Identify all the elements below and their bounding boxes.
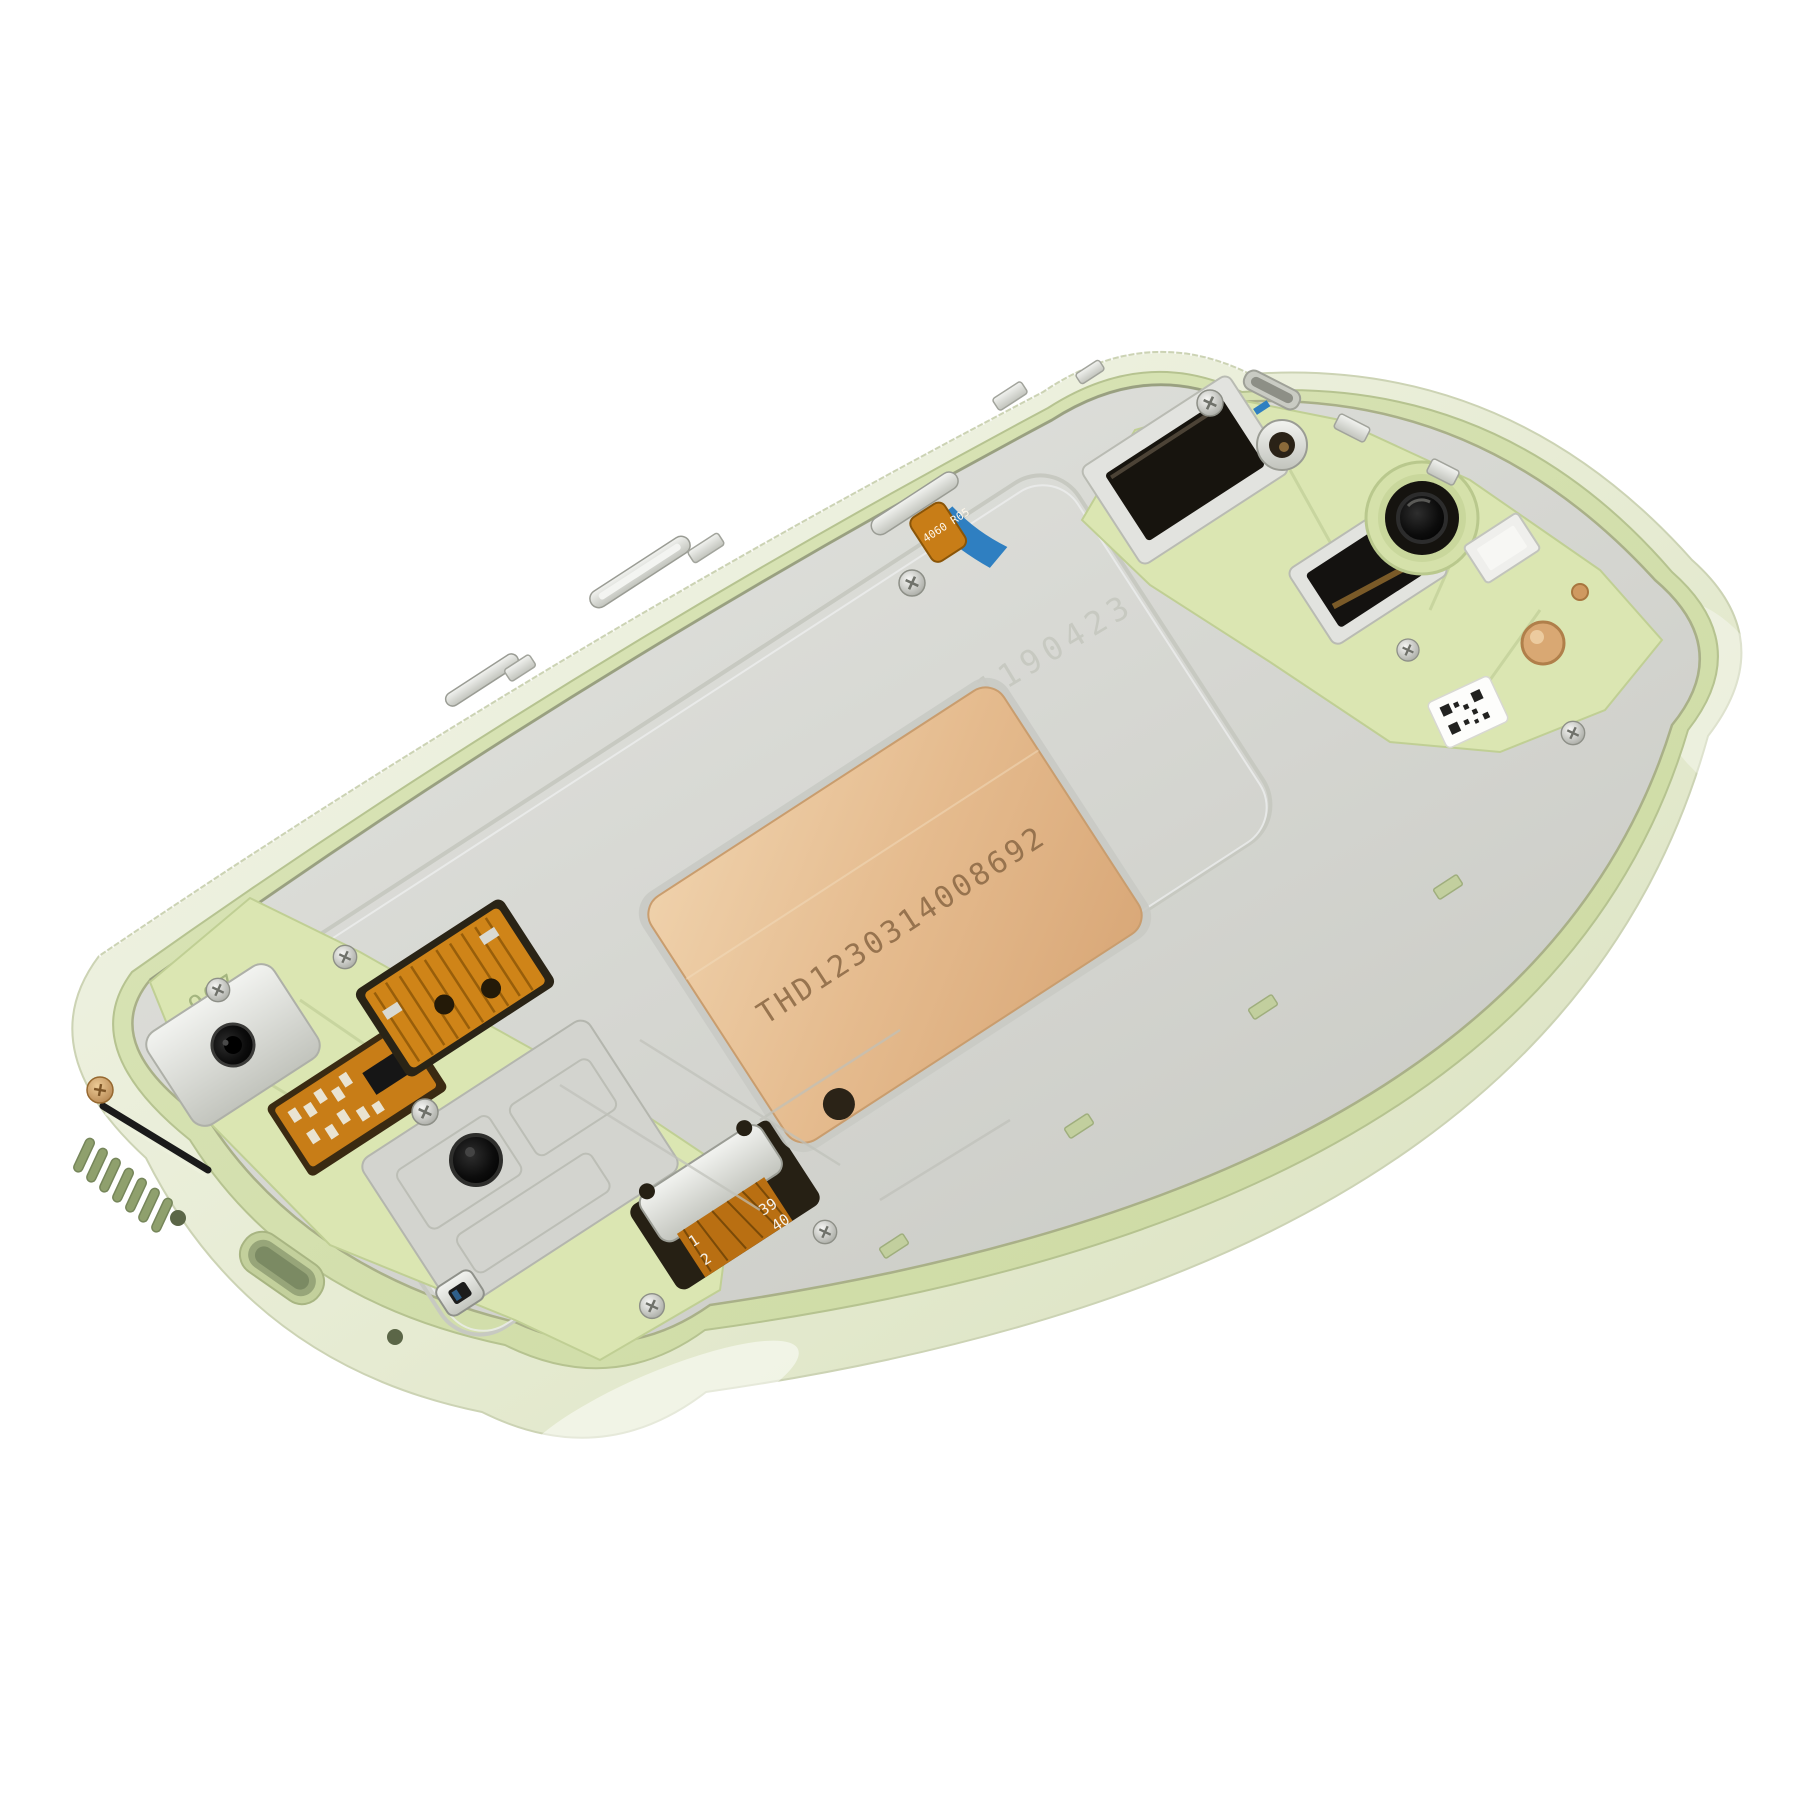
midframe-illustration: 1190423 907	[0, 0, 1800, 1800]
phillips-screw	[206, 978, 229, 1001]
phillips-screw	[412, 1099, 438, 1125]
spring-contact	[687, 532, 725, 563]
phillips-screw	[640, 1294, 665, 1319]
motor-glint	[465, 1147, 475, 1157]
copper-dot	[1572, 584, 1588, 600]
phillips-screw	[899, 570, 925, 596]
camera-opening	[1366, 462, 1478, 574]
phillips-screw	[1197, 390, 1223, 416]
copper-disc-glint	[1530, 630, 1544, 644]
mic-hole	[387, 1329, 403, 1345]
motor-opening	[451, 1135, 501, 1185]
grommet	[1257, 420, 1307, 470]
phillips-screw	[813, 1220, 836, 1243]
phone-midframe: 1190423 907	[72, 352, 1800, 1500]
phillips-screw	[333, 945, 356, 968]
phillips-screw	[1397, 639, 1419, 661]
copper-disc	[1522, 622, 1564, 664]
phillips-screw	[1561, 721, 1584, 744]
mic-hole	[170, 1210, 186, 1226]
product-photo: 1190423 907	[0, 0, 1800, 1800]
gold-screw	[87, 1077, 113, 1103]
